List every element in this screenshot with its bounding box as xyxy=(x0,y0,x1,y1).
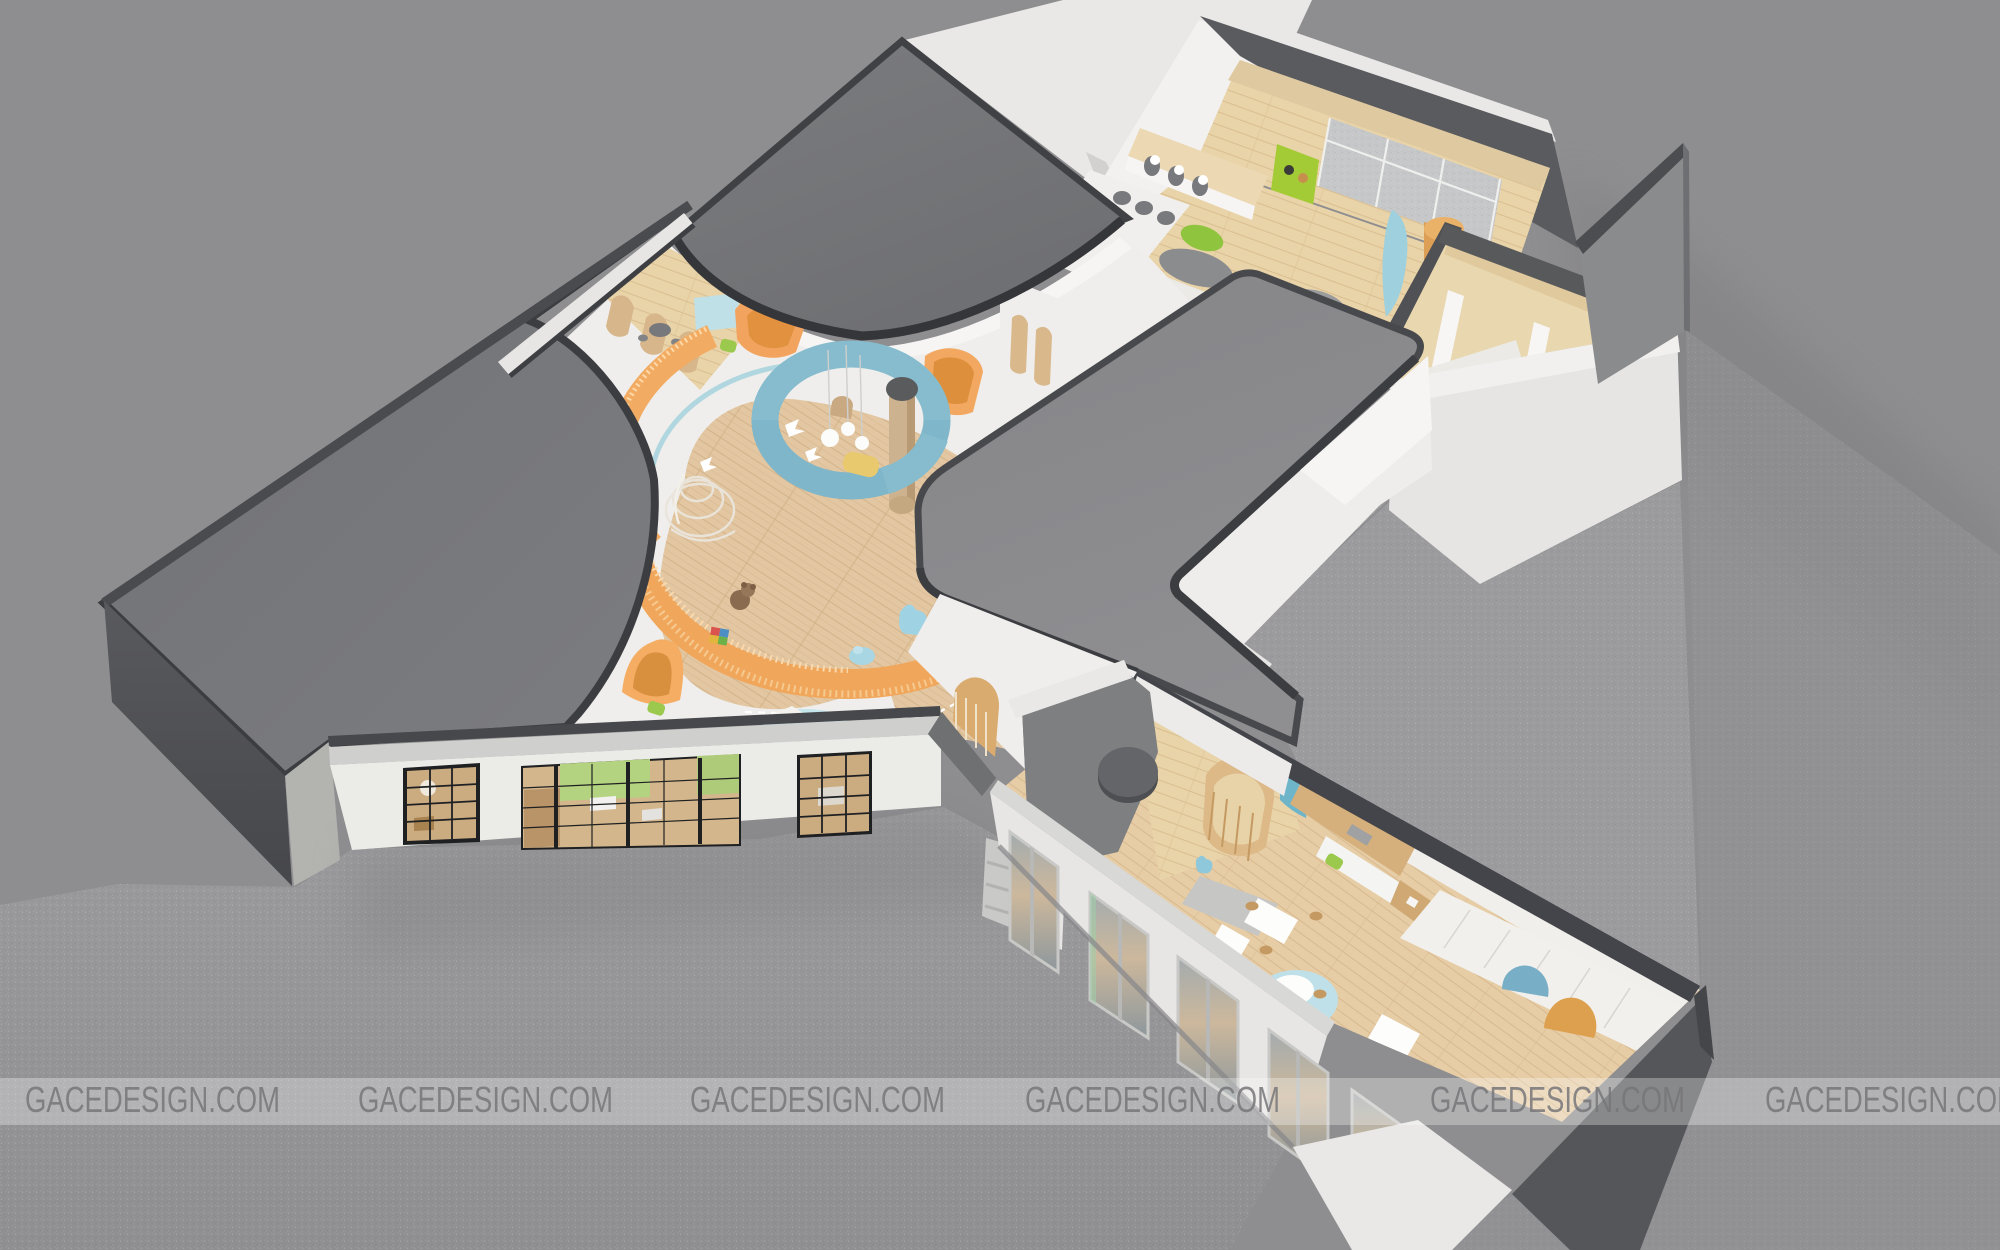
svg-text:GACEDESIGN.COM: GACEDESIGN.COM xyxy=(25,1079,280,1120)
svg-text:GACEDESIGN.COM: GACEDESIGN.COM xyxy=(1025,1079,1280,1120)
svg-text:GACEDESIGN.COM: GACEDESIGN.COM xyxy=(1430,1079,1685,1120)
svg-text:GACEDESIGN.COM: GACEDESIGN.COM xyxy=(1765,1079,2000,1120)
svg-text:GACEDESIGN.COM: GACEDESIGN.COM xyxy=(690,1079,945,1120)
svg-text:GACEDESIGN.COM: GACEDESIGN.COM xyxy=(358,1079,613,1120)
